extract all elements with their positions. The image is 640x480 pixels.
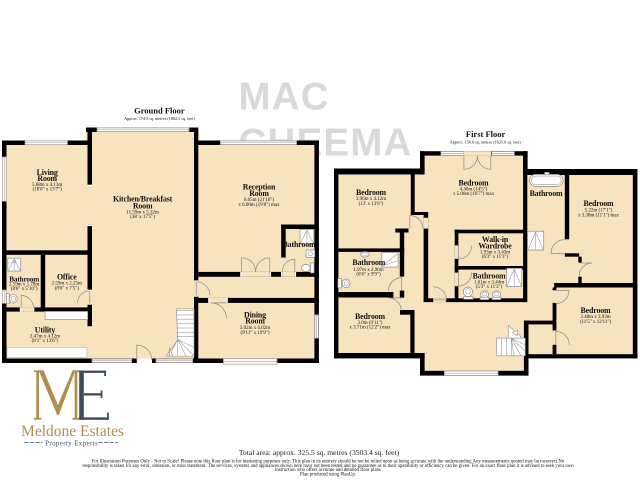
svg-text:Plan produced using PlanUp.: Plan produced using PlanUp. — [300, 473, 356, 478]
svg-text:Approx. 174.9 sq. metres (1882: Approx. 174.9 sq. metres (1882.5 sq. fee… — [124, 116, 195, 121]
svg-text:Bedroom: Bedroom — [459, 178, 490, 187]
svg-text:(8'6" x 5'10"): (8'6" x 5'10") — [11, 287, 38, 292]
svg-text:Bedroom: Bedroom — [356, 188, 387, 197]
svg-text:(38' x 17'5"): (38' x 17'5") — [130, 215, 155, 220]
svg-text:Bedroom: Bedroom — [581, 306, 612, 315]
svg-text:(18'8" x 13'7"): (18'8" x 13'7") — [33, 187, 63, 192]
svg-text:(5'3" x 11'3"): (5'3" x 11'3") — [476, 285, 503, 290]
svg-text:x 3.71m (12'2") max: x 3.71m (12'2") max — [349, 326, 391, 331]
svg-text:(11'5" x 12'11"): (11'5" x 12'11") — [580, 320, 612, 325]
svg-text:Wardrobe: Wardrobe — [478, 242, 512, 251]
svg-text:Total area: approx. 325.5 sq.: Total area: approx. 325.5 sq. metres (35… — [239, 448, 400, 457]
svg-text:Office: Office — [57, 273, 77, 282]
svg-text:Utility: Utility — [35, 326, 56, 335]
svg-text:x 3.38m (11'1") max: x 3.38m (11'1") max — [578, 213, 620, 218]
svg-text:(8'1" x 13'6"): (8'1" x 13'6") — [32, 339, 59, 344]
svg-text:First Floor: First Floor — [466, 129, 506, 139]
svg-text:Property Experts: Property Experts — [45, 441, 98, 448]
svg-text:(8'6" x 7'5"): (8'6" x 7'5") — [55, 287, 80, 292]
svg-text:(6'3" x 11'3"): (6'3" x 11'3") — [482, 255, 509, 260]
svg-text:Bedroom: Bedroom — [584, 199, 615, 208]
svg-text:MAC: MAC — [239, 75, 330, 118]
svg-text:Ground Floor: Ground Floor — [134, 106, 185, 116]
svg-text:Meldone Estates: Meldone Estates — [21, 423, 124, 440]
svg-text:Bedroom: Bedroom — [355, 312, 386, 321]
svg-text:Room: Room — [133, 202, 153, 211]
svg-text:x 6.00m (19'8") max: x 6.00m (19'8") max — [238, 203, 280, 208]
svg-text:Bathroom: Bathroom — [473, 271, 506, 280]
svg-text:x 5.06m (16'7") max: x 5.06m (16'7") max — [453, 192, 495, 197]
svg-text:(13' x 13'6"): (13' x 13'6") — [359, 202, 384, 207]
svg-text:Approx. 150.6 sq. metres (1621: Approx. 150.6 sq. metres (1621.0 sq. fee… — [450, 140, 521, 145]
svg-text:Bathroom: Bathroom — [352, 258, 385, 267]
svg-text:Bathroom: Bathroom — [530, 189, 563, 198]
svg-text:(9'11" x 19'9"): (9'11" x 19'9") — [240, 331, 269, 336]
svg-text:Room: Room — [245, 317, 265, 326]
svg-text:Bathroom: Bathroom — [283, 240, 316, 249]
svg-text:(6'6" x 9'9"): (6'6" x 9'9") — [356, 273, 381, 278]
svg-text:Room: Room — [37, 174, 57, 183]
svg-text:Room: Room — [249, 189, 269, 198]
